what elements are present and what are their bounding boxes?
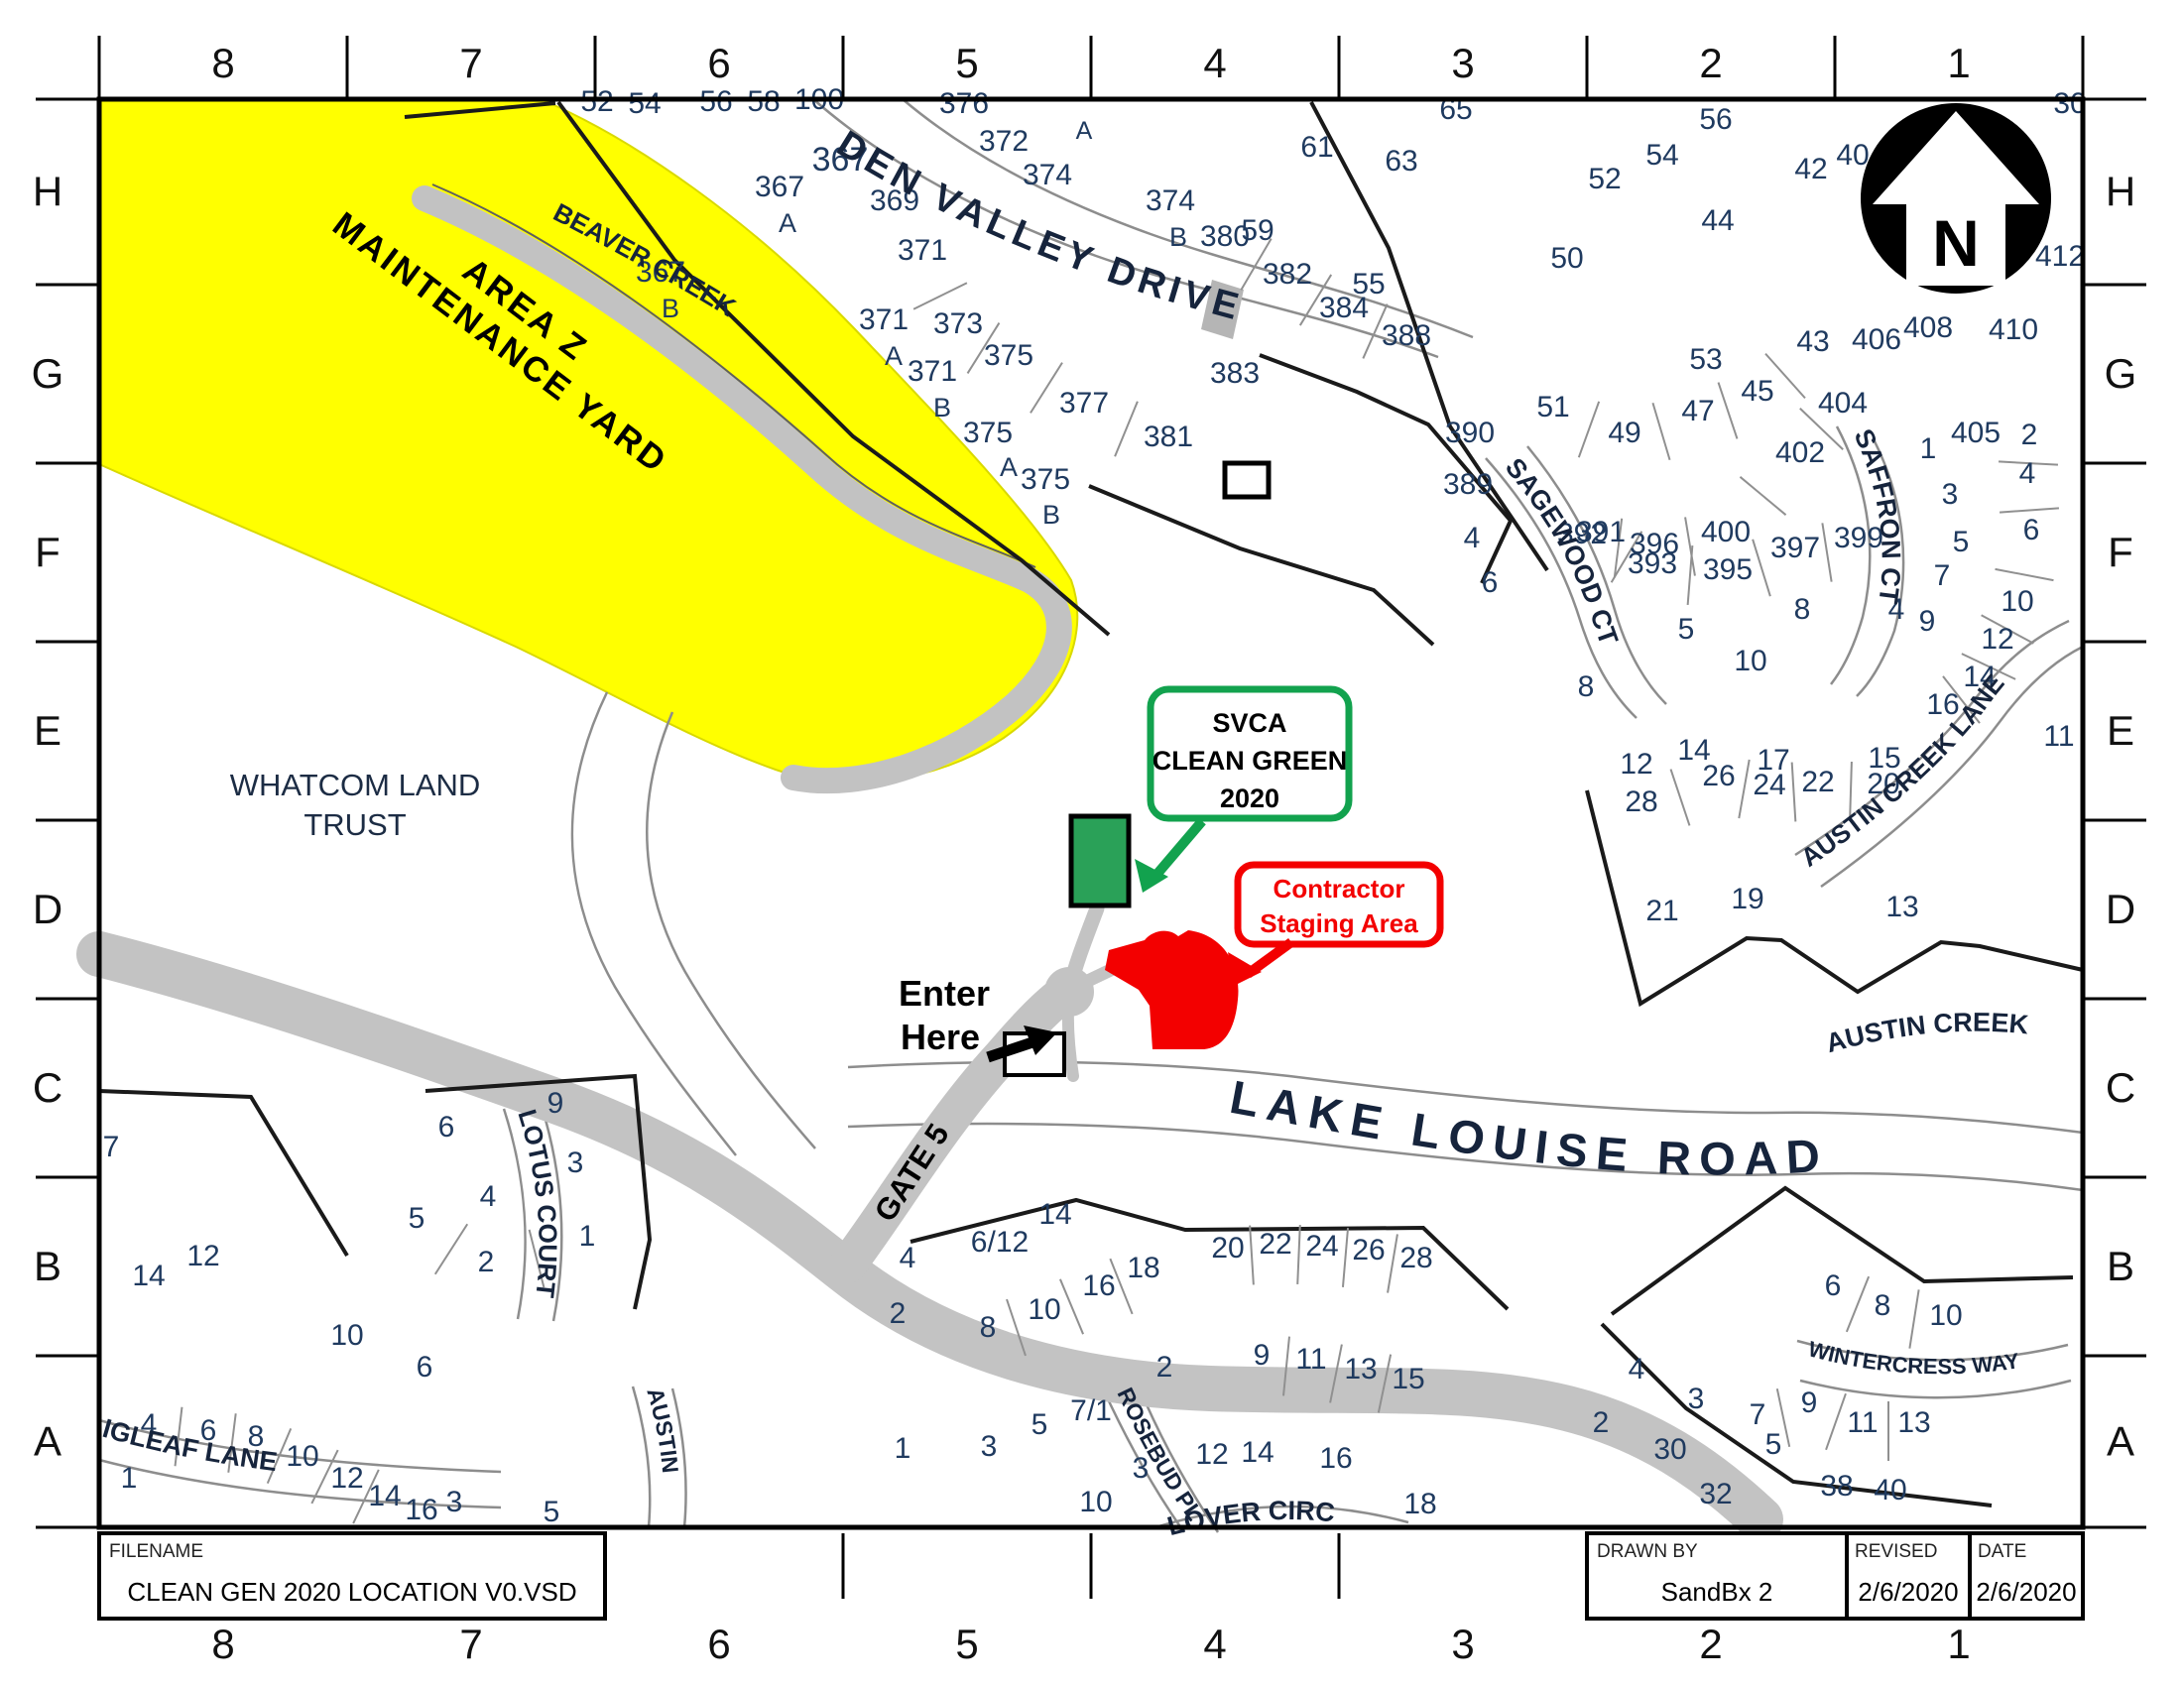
grid-col-label: 4 bbox=[1203, 1621, 1226, 1667]
lot-number: 373 bbox=[933, 307, 983, 340]
lot-number: 4 bbox=[1629, 1353, 1645, 1386]
lot-number: 26 bbox=[1352, 1234, 1385, 1266]
lot-number: 410 bbox=[1989, 313, 2038, 346]
lot-number: 28 bbox=[1399, 1242, 1432, 1274]
lot-number: 61 bbox=[1300, 131, 1333, 164]
date-label: DATE bbox=[1978, 1541, 2026, 1562]
lot-number: 2 bbox=[1593, 1406, 1610, 1439]
lot-number: A bbox=[1000, 452, 1018, 482]
lot-number: 42 bbox=[1794, 153, 1827, 185]
street-label-sagewood-ct: SAGEWOOD CT bbox=[1500, 452, 1625, 649]
lot-number: A bbox=[885, 341, 903, 371]
site-map: 52545658100376372A374374B367367A36937136… bbox=[0, 0, 2184, 1688]
lot-number: 372 bbox=[979, 125, 1029, 158]
lot-number: 397 bbox=[1770, 532, 1820, 564]
contractor-line1: Contractor bbox=[1274, 874, 1405, 904]
lot-number: 5 bbox=[1953, 526, 1970, 558]
lot-number: 12 bbox=[186, 1240, 219, 1272]
lot-number: 5 bbox=[1678, 613, 1695, 646]
lot-number: 6 bbox=[1825, 1269, 1842, 1302]
lot-number: 50 bbox=[1550, 242, 1583, 275]
lot-number: B bbox=[662, 294, 679, 323]
lot-number: 7 bbox=[1750, 1398, 1766, 1431]
grid-col-label: 8 bbox=[211, 40, 234, 86]
grid-col-label: 6 bbox=[707, 40, 730, 86]
grid-row-label: D bbox=[33, 886, 62, 932]
svg-text:LOTUS COURT: LOTUS COURT bbox=[512, 1106, 562, 1299]
lot-number: 11 bbox=[1847, 1406, 1878, 1439]
lot-number: 22 bbox=[1801, 766, 1834, 798]
lot-number: 393 bbox=[1628, 547, 1677, 580]
whatcom-line1: WHATCOM LAND bbox=[230, 768, 481, 802]
grid-row-label: C bbox=[33, 1064, 62, 1111]
lot-number: 2 bbox=[2021, 419, 2038, 451]
lot-number: 375 bbox=[984, 339, 1033, 372]
lot-number: 412 bbox=[2035, 240, 2085, 273]
lot-number: 32 bbox=[1699, 1478, 1732, 1510]
lot-number: 375 bbox=[1021, 463, 1070, 496]
lot-number: 377 bbox=[1059, 387, 1109, 420]
lot-number: 4 bbox=[2019, 457, 2036, 490]
lot-number: 390 bbox=[1445, 417, 1495, 449]
lot-number: 7/1 bbox=[1070, 1394, 1112, 1427]
lot-number: 1 bbox=[579, 1220, 596, 1253]
svca-line3: 2020 bbox=[1220, 784, 1279, 813]
lot-number: 59 bbox=[1241, 214, 1274, 247]
grid-col-label: 8 bbox=[211, 1621, 234, 1667]
lot-number: 9 bbox=[1919, 605, 1936, 638]
lot-number: 10 bbox=[330, 1319, 363, 1352]
street-label-lake-louise-road: LAKE LOUISE ROAD bbox=[1226, 1070, 1830, 1185]
enter-line2: Here bbox=[901, 1017, 980, 1057]
lot-number: 55 bbox=[1352, 268, 1385, 301]
lot-number: 5 bbox=[409, 1202, 425, 1235]
lot-number: 371 bbox=[908, 355, 957, 388]
lot-number: 374 bbox=[1023, 159, 1072, 191]
grid-row-label: F bbox=[35, 529, 61, 575]
svca-arrow bbox=[1156, 821, 1202, 875]
grid-row-label: D bbox=[2106, 886, 2135, 932]
lot-number: 7 bbox=[103, 1131, 120, 1163]
lot-number: 374 bbox=[1146, 184, 1195, 217]
lot-number: 14 bbox=[132, 1260, 165, 1292]
lot-number: 2 bbox=[1156, 1351, 1173, 1384]
lot-number: 1 bbox=[895, 1432, 911, 1465]
lot-number: 20 bbox=[1211, 1232, 1244, 1265]
lot-number: 8 bbox=[1794, 593, 1811, 626]
label-austin-creek: AUSTIN CREEK bbox=[1823, 1008, 2030, 1058]
street-label-saffron-ct: SAFFRON CT bbox=[1849, 424, 1906, 606]
date-value: 2/6/2020 bbox=[1976, 1577, 2076, 1607]
lot-number: 404 bbox=[1818, 387, 1868, 420]
revised-value: 2/6/2020 bbox=[1858, 1577, 1958, 1607]
lot-number: 9 bbox=[1254, 1339, 1271, 1372]
drawn-by-value: SandBx 2 bbox=[1661, 1577, 1773, 1607]
lot-number: 6 bbox=[417, 1351, 433, 1384]
lot-number: 5 bbox=[544, 1496, 560, 1528]
lot-number: 13 bbox=[1897, 1406, 1930, 1439]
enter-line1: Enter bbox=[899, 973, 990, 1014]
grid-row-label: B bbox=[2107, 1243, 2134, 1289]
whatcom-land-trust-label: WHATCOM LAND TRUST bbox=[230, 768, 481, 842]
grid-col-label: 7 bbox=[459, 40, 482, 86]
lot-number: 2 bbox=[890, 1297, 907, 1330]
filename-label: FILENAME bbox=[109, 1541, 203, 1562]
lot-number: 6 bbox=[438, 1111, 455, 1144]
lot-number: 4 bbox=[1464, 522, 1481, 554]
drawn-by-label: DRAWN BY bbox=[1597, 1541, 1698, 1562]
lot-number: 28 bbox=[1625, 785, 1657, 818]
svg-text:AUSTIN CREEK: AUSTIN CREEK bbox=[1823, 1008, 2030, 1058]
lot-number: 6 bbox=[2023, 514, 2040, 546]
north-arrow: N bbox=[1861, 103, 2051, 294]
lot-number: 10 bbox=[2001, 585, 2033, 618]
lot-number: 12 bbox=[1195, 1438, 1228, 1471]
lot-number: 16 bbox=[405, 1494, 437, 1526]
grid-col-label: 2 bbox=[1699, 1621, 1722, 1667]
lot-number: 376 bbox=[939, 87, 989, 120]
lot-number: 1 bbox=[1920, 432, 1937, 465]
lot-number: 30 bbox=[1653, 1433, 1686, 1466]
lot-number: 8 bbox=[980, 1311, 997, 1344]
grid-row-label: F bbox=[2108, 529, 2133, 575]
lot-number: 24 bbox=[1753, 769, 1785, 801]
filename-value: CLEAN GEN 2020 LOCATION V0.VSD bbox=[127, 1577, 576, 1607]
grid-col-label: 5 bbox=[955, 1621, 978, 1667]
svg-text:WINTERCRESS WAY: WINTERCRESS WAY bbox=[1806, 1336, 2021, 1379]
lot-number: 6 bbox=[1482, 566, 1499, 599]
grid-row-label: H bbox=[2106, 169, 2135, 215]
lot-number: 53 bbox=[1689, 343, 1722, 376]
lot-number: 12 bbox=[1981, 623, 2013, 656]
lot-number: 13 bbox=[1344, 1353, 1377, 1386]
lot-number: B bbox=[1169, 222, 1187, 252]
street-label-lotus-court: LOTUS COURT bbox=[512, 1106, 562, 1299]
lot-number: 3 bbox=[981, 1430, 998, 1463]
lot-number: 3 bbox=[567, 1146, 584, 1179]
lot-number: 381 bbox=[1144, 421, 1193, 453]
lot-number: 10 bbox=[286, 1440, 318, 1473]
lot-number: 56 bbox=[1699, 103, 1732, 136]
lot-number: 10 bbox=[1929, 1299, 1962, 1332]
grid-col-label: 5 bbox=[955, 40, 978, 86]
lot-number: 5 bbox=[1031, 1408, 1048, 1441]
svg-text:SAFFRON CT: SAFFRON CT bbox=[1849, 424, 1906, 606]
grid-col-label: 1 bbox=[1947, 1621, 1970, 1667]
grid-row-label: A bbox=[2107, 1418, 2134, 1465]
revised-label: REVISED bbox=[1855, 1541, 1937, 1562]
lot-number: 47 bbox=[1681, 395, 1714, 427]
grid-row-label: G bbox=[2105, 350, 2137, 397]
lot-number: A bbox=[1076, 117, 1093, 145]
lot-number: 371 bbox=[859, 303, 909, 336]
lot-number: 3 bbox=[446, 1486, 463, 1518]
grid-col-label: 1 bbox=[1947, 40, 1970, 86]
lot-number: 21 bbox=[1645, 895, 1678, 927]
svca-line2: CLEAN GREEN bbox=[1153, 746, 1348, 776]
lot-number: 8 bbox=[1578, 670, 1595, 703]
lot-number: 26 bbox=[1702, 760, 1735, 792]
lot-number: 375 bbox=[963, 417, 1013, 449]
lot-number: 4 bbox=[900, 1242, 916, 1274]
lot-number: 406 bbox=[1852, 323, 1901, 356]
lot-number: 405 bbox=[1951, 417, 2001, 449]
lot-number: 49 bbox=[1608, 417, 1640, 449]
lot-number: 54 bbox=[1645, 139, 1678, 172]
grid-col-label: 3 bbox=[1451, 40, 1474, 86]
svca-clean-green-site bbox=[1071, 816, 1129, 905]
lot-number: 400 bbox=[1701, 516, 1751, 548]
lot-number: 3 bbox=[1942, 478, 1959, 511]
lot-number: B bbox=[933, 393, 951, 422]
lot-number: 43 bbox=[1796, 325, 1829, 358]
lot-number: 367 bbox=[755, 171, 804, 203]
grid-row-label: E bbox=[2107, 707, 2134, 754]
lot-number: 14 bbox=[1241, 1436, 1274, 1469]
lot-number: 389 bbox=[1443, 468, 1493, 501]
lot-number: 14 bbox=[368, 1480, 401, 1512]
lot-number: 388 bbox=[1382, 319, 1431, 352]
street-label-wintercress-way: WINTERCRESS WAY bbox=[1806, 1336, 2021, 1379]
lot-number: B bbox=[1042, 500, 1060, 530]
lot-number: 2 bbox=[478, 1246, 495, 1278]
lot-number: 14 bbox=[1038, 1198, 1071, 1231]
lot-number: 40 bbox=[1836, 139, 1869, 172]
svg-text:SAGEWOOD CT: SAGEWOOD CT bbox=[1500, 452, 1625, 649]
lot-number: 44 bbox=[1701, 204, 1734, 237]
lot-number: 19 bbox=[1731, 883, 1763, 915]
grid-row-label: B bbox=[34, 1243, 61, 1289]
lot-number: 383 bbox=[1210, 357, 1260, 390]
lot-number: 12 bbox=[1620, 748, 1652, 781]
contractor-line2: Staging Area bbox=[1260, 908, 1418, 938]
lot-number: 408 bbox=[1903, 311, 1953, 344]
lot-number: 5 bbox=[1765, 1428, 1782, 1461]
grid-row-label: E bbox=[34, 707, 61, 754]
lot-number: 10 bbox=[1028, 1293, 1060, 1326]
lot-number: 13 bbox=[1885, 891, 1918, 923]
whatcom-line2: TRUST bbox=[303, 807, 406, 842]
building-symbol bbox=[1225, 463, 1269, 497]
lot-number: 6/12 bbox=[971, 1226, 1029, 1259]
lot-number: 63 bbox=[1385, 145, 1417, 178]
lot-number: 3 bbox=[1688, 1383, 1705, 1415]
lot-number: 51 bbox=[1536, 391, 1569, 423]
grid-col-label: 4 bbox=[1203, 40, 1226, 86]
lot-number: 8 bbox=[1875, 1289, 1891, 1322]
map-page: 52545658100376372A374374B367367A36937136… bbox=[0, 0, 2184, 1688]
lot-number: 10 bbox=[1734, 645, 1766, 677]
svg-text:LAKE LOUISE ROAD: LAKE LOUISE ROAD bbox=[1226, 1070, 1830, 1185]
lot-number: 18 bbox=[1127, 1252, 1159, 1284]
svca-line1: SVCA bbox=[1212, 708, 1286, 738]
lot-number: 395 bbox=[1703, 553, 1753, 586]
lot-number: 16 bbox=[1082, 1269, 1115, 1302]
grid-row-label: C bbox=[2106, 1064, 2135, 1111]
lot-number: 18 bbox=[1403, 1488, 1436, 1520]
road-intersection bbox=[1044, 967, 1094, 1017]
gate-5-label: GATE 5 bbox=[868, 1118, 956, 1228]
lot-number: 15 bbox=[1392, 1363, 1424, 1395]
lot-number: 11 bbox=[1295, 1343, 1326, 1376]
lot-number: 11 bbox=[2043, 720, 2074, 753]
lot-number: 9 bbox=[547, 1087, 564, 1120]
grid-row-label: H bbox=[33, 169, 62, 215]
lot-number: 45 bbox=[1741, 375, 1773, 408]
lot-number: 7 bbox=[1934, 559, 1951, 592]
lot-number: 9 bbox=[1801, 1387, 1818, 1419]
lot-number: 4 bbox=[480, 1180, 497, 1213]
lot-number: 371 bbox=[898, 234, 947, 267]
grid-col-label: 7 bbox=[459, 1621, 482, 1667]
grid-row-label: A bbox=[34, 1418, 61, 1465]
lot-number: 52 bbox=[1588, 163, 1621, 195]
lot-number: 1 bbox=[121, 1462, 138, 1495]
lot-number: 12 bbox=[330, 1462, 363, 1495]
lot-number: 16 bbox=[1319, 1442, 1352, 1475]
lot-number: 402 bbox=[1775, 436, 1825, 469]
lot-number: 24 bbox=[1305, 1230, 1338, 1263]
contractor-callout: Contractor Staging Area bbox=[1228, 865, 1440, 986]
grid-col-label: 6 bbox=[707, 1621, 730, 1667]
lot-number: 54 bbox=[628, 87, 661, 120]
contractor-staging-area-polygon bbox=[1105, 930, 1239, 1049]
north-arrow-letter: N bbox=[1932, 206, 1980, 280]
lot-number: 22 bbox=[1259, 1228, 1291, 1261]
lot-number: 38 bbox=[1820, 1470, 1853, 1503]
lot-number: 40 bbox=[1874, 1474, 1906, 1507]
lot-number: 382 bbox=[1263, 258, 1312, 291]
lot-number: A bbox=[779, 208, 796, 238]
lot-number: 10 bbox=[1079, 1486, 1112, 1518]
grid-col-label: 2 bbox=[1699, 40, 1722, 86]
grid-col-label: 3 bbox=[1451, 1621, 1474, 1667]
grid-row-label: G bbox=[32, 350, 64, 397]
